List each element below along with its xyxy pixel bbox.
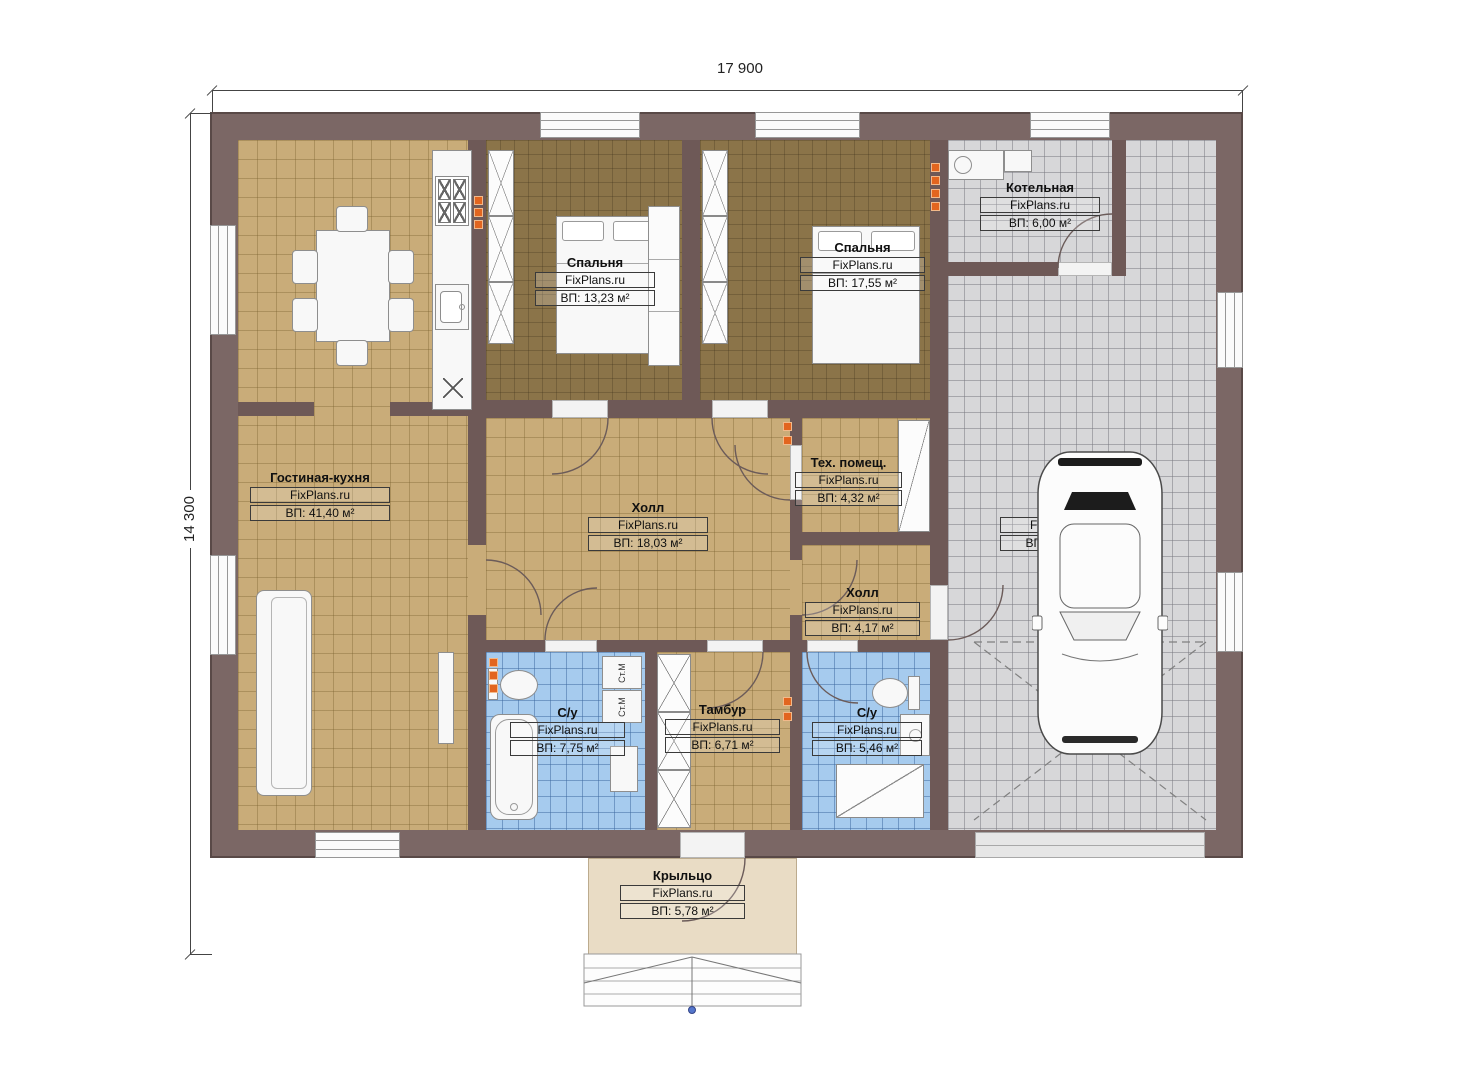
- room-site: FixPlans.ru: [812, 722, 922, 738]
- vent-marker-icon: [931, 176, 940, 185]
- room-label-hall: Холл FixPlans.ru ВП: 18,03 м²: [588, 500, 708, 551]
- room-name: Холл: [588, 500, 708, 515]
- tech-closet: [898, 420, 930, 532]
- room-label-tech-room: Тех. помещ. FixPlans.ru ВП: 4,32 м²: [795, 455, 902, 506]
- door-bedroom2: [712, 400, 768, 418]
- dimension-height-value: 14 300: [181, 490, 198, 548]
- room-site: FixPlans.ru: [535, 272, 655, 288]
- toilet-bowl: [500, 670, 538, 700]
- toilet-bowl: [872, 678, 908, 708]
- room-label-living-kitchen: Гостиная-кухня FixPlans.ru ВП: 41,40 м²: [250, 470, 390, 521]
- kitchen-sink: [435, 284, 469, 330]
- room-label-bathroom-right: С/у FixPlans.ru ВП: 5,46 м²: [812, 705, 922, 756]
- wardrobe: [488, 216, 514, 282]
- room-label-garage: Гараж FixPlans.ru ВП: 48,69 м²: [1000, 500, 1120, 551]
- room-area: ВП: 4,32 м²: [795, 490, 902, 506]
- window-left-living: [210, 555, 236, 655]
- porch-steps: [583, 953, 802, 1017]
- room-name: Гараж: [1000, 500, 1120, 515]
- room-area: ВП: 6,00 м²: [980, 215, 1100, 231]
- dimension-ext-left-top: [190, 113, 212, 114]
- room-name: Крыльцо: [620, 868, 745, 883]
- hob-cross-icon: [443, 378, 463, 398]
- boiler-dial-icon: [954, 156, 972, 174]
- room-name: Тех. помещ.: [795, 455, 902, 470]
- room-area: ВП: 7,75 м²: [510, 740, 625, 756]
- vent-marker-icon: [783, 712, 792, 721]
- chair: [336, 340, 368, 366]
- room-name: Спальня: [535, 255, 655, 270]
- room-name: С/у: [812, 705, 922, 720]
- room-area: ВП: 5,78 м²: [620, 903, 745, 919]
- window-right-garage-bottom: [1217, 572, 1243, 652]
- vent-marker-icon: [474, 220, 483, 229]
- wardrobe: [702, 150, 728, 216]
- tv-stand: [438, 652, 454, 744]
- vent-marker-icon: [489, 671, 498, 680]
- door-bathroom-left: [545, 640, 597, 652]
- wall-boiler-right: [1112, 140, 1126, 276]
- room-area: ВП: 4,17 м²: [805, 620, 920, 636]
- dining-table: [316, 230, 390, 342]
- dimension-width-label: 17 900: [660, 60, 820, 78]
- room-site: FixPlans.ru: [805, 602, 920, 618]
- wardrobe: [702, 282, 728, 344]
- vent-marker-icon: [931, 189, 940, 198]
- room-label-boiler: Котельная FixPlans.ru ВП: 6,00 м²: [980, 180, 1100, 231]
- sofa: [256, 590, 312, 796]
- closet: [657, 770, 691, 828]
- chair: [336, 206, 368, 232]
- vent-marker-icon: [931, 202, 940, 211]
- vent-marker-icon: [474, 208, 483, 217]
- room-label-porch: Крыльцо FixPlans.ru ВП: 5,78 м²: [620, 868, 745, 919]
- garage-floor: [948, 140, 1216, 830]
- stove-icon: [435, 176, 469, 226]
- room-name: Холл: [805, 585, 920, 600]
- washing-machine: Ст.М: [602, 656, 642, 689]
- vent-marker-icon: [474, 196, 483, 205]
- dimension-ext-top-right: [1242, 90, 1243, 112]
- door-garage-hall: [930, 585, 948, 640]
- room-label-bedroom2: Спальня FixPlans.ru ВП: 17,55 м²: [800, 240, 925, 291]
- garage-gate: [975, 832, 1205, 858]
- dimension-ext-top-left: [212, 90, 213, 112]
- vent-marker-icon: [783, 422, 792, 431]
- dimension-line-top: [212, 90, 1243, 91]
- room-label-tambur: Тамбур FixPlans.ru ВП: 6,71 м²: [665, 702, 780, 753]
- door-tambur: [707, 640, 763, 652]
- chair: [292, 250, 318, 284]
- room-name: Спальня: [800, 240, 925, 255]
- room-label-bedroom1: Спальня FixPlans.ru ВП: 13,23 м²: [535, 255, 655, 306]
- room-area: ВП: 48,69 м²: [1000, 535, 1120, 551]
- vent-marker-icon: [931, 163, 940, 172]
- room-site: FixPlans.ru: [665, 719, 780, 735]
- room-name: Котельная: [980, 180, 1100, 195]
- wardrobe: [488, 282, 514, 344]
- washing-machine-label: Ст.М: [617, 663, 627, 683]
- door-bedroom1: [552, 400, 608, 418]
- entrance-door: [680, 832, 745, 858]
- room-name: Тамбур: [665, 702, 780, 717]
- chair: [388, 250, 414, 284]
- dimension-ext-left-bottom: [190, 954, 212, 955]
- wall-tech-bottom: [802, 532, 930, 545]
- burner-icon: [453, 202, 466, 223]
- room-site: FixPlans.ru: [1000, 517, 1120, 533]
- vent-marker-icon: [489, 658, 498, 667]
- wall-kitchen-stub-left: [238, 402, 314, 416]
- room-name: Гостиная-кухня: [250, 470, 390, 485]
- opening-living-hall: [468, 545, 486, 615]
- room-area: ВП: 18,03 м²: [588, 535, 708, 551]
- vent-marker-icon: [783, 697, 792, 706]
- room-site: FixPlans.ru: [800, 257, 925, 273]
- door-boiler: [1058, 262, 1112, 276]
- bathtub-drain-icon: [510, 803, 518, 811]
- burner-icon: [453, 179, 466, 200]
- boiler-unit: [948, 150, 1004, 180]
- wall-bath-tambur: [645, 652, 657, 830]
- wall-garage-left: [930, 140, 948, 830]
- burner-icon: [438, 202, 451, 223]
- window-left-kitchen: [210, 225, 236, 335]
- room-area: ВП: 5,46 м²: [812, 740, 922, 756]
- wardrobe: [702, 216, 728, 282]
- room-site: FixPlans.ru: [620, 885, 745, 901]
- window-top-garage: [1030, 112, 1110, 138]
- dimension-height-label: 14 300: [181, 459, 199, 579]
- chair: [388, 298, 414, 332]
- vent-marker-icon: [489, 684, 498, 693]
- room-area: ВП: 17,55 м²: [800, 275, 925, 291]
- floor-plan-canvas: 17 900 14 300: [0, 0, 1474, 1080]
- room-site: FixPlans.ru: [980, 197, 1100, 213]
- wardrobe: [488, 150, 514, 216]
- room-site: FixPlans.ru: [250, 487, 390, 503]
- room-site: FixPlans.ru: [588, 517, 708, 533]
- opening-hall-hall2: [790, 560, 802, 615]
- pillow: [562, 221, 604, 241]
- room-site: FixPlans.ru: [795, 472, 902, 488]
- shower-tray: [836, 764, 924, 818]
- chair: [292, 298, 318, 332]
- sofa-seat: [271, 597, 307, 789]
- room-site: FixPlans.ru: [510, 722, 625, 738]
- vent-marker-icon: [783, 436, 792, 445]
- room-area: ВП: 13,23 м²: [535, 290, 655, 306]
- room-label-bathroom-left: С/у FixPlans.ru ВП: 7,75 м²: [510, 705, 625, 756]
- room-area: ВП: 41,40 м²: [250, 505, 390, 521]
- burner-icon: [438, 179, 451, 200]
- room-area: ВП: 6,71 м²: [665, 737, 780, 753]
- room-label-hall2: Холл FixPlans.ru ВП: 4,17 м²: [805, 585, 920, 636]
- door-bathroom-right: [807, 640, 858, 652]
- dimension-width-value: 17 900: [711, 60, 769, 77]
- boiler-shelf: [1004, 150, 1032, 172]
- sink-drain-icon: [459, 304, 465, 310]
- window-top-bedroom2: [755, 112, 860, 138]
- window-top-bedroom1: [540, 112, 640, 138]
- window-bottom-living: [315, 832, 400, 858]
- wall-bedrooms-divider: [682, 140, 700, 400]
- room-name: С/у: [510, 705, 625, 720]
- window-right-garage-top: [1217, 292, 1243, 368]
